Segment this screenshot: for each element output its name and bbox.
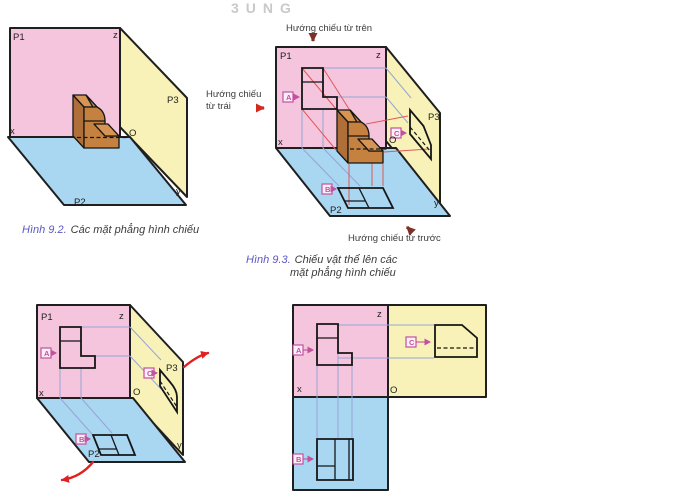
p3-plane-unfolded [388, 305, 486, 397]
label-x: x [39, 388, 44, 399]
label-y: y [177, 440, 182, 451]
left-direction-label-line1: Hướng chiếu [206, 89, 261, 100]
fig92-caption-number: Hình 9.2. [22, 224, 67, 236]
label-y: y [176, 186, 181, 197]
p2-plane-unfolded [293, 397, 388, 490]
fig93-caption-text1: Chiếu vật thể lên các [295, 254, 398, 266]
label-o: O [390, 385, 397, 396]
label-p1: P1 [280, 51, 292, 62]
label-y: y [434, 198, 439, 209]
label-p3: P3 [428, 112, 440, 123]
label-z: z [119, 311, 124, 322]
label-b: B [325, 185, 331, 194]
fig-9-2: P1 z P3 x O y P2 Hình 9.2.Các mặt phẳng … [8, 28, 199, 236]
label-c: C [409, 338, 415, 347]
fig93-caption-line2: mặt phẳng hình chiếu [290, 266, 396, 279]
fig-9-3: A C B P1 z P3 x O y P2 Hướng chiếu từ tr… [206, 23, 450, 279]
label-o: O [129, 128, 136, 139]
textbook-figure-page: 3UNG P1 z P3 x O y P2 Hình 9.2.Các mặt p… [0, 0, 675, 499]
fig92-caption-text: Các mặt phẳng hình chiếu [71, 223, 199, 236]
label-o: O [389, 135, 396, 146]
label-b: B [296, 455, 302, 464]
label-p2: P2 [88, 449, 100, 460]
label-p1: P1 [13, 32, 25, 43]
label-p2: P2 [74, 197, 86, 208]
label-z: z [113, 30, 118, 41]
label-p1: P1 [41, 312, 53, 323]
figure-canvas: 3UNG P1 z P3 x O y P2 Hình 9.2.Các mặt p… [0, 0, 675, 499]
label-z: z [376, 50, 381, 61]
p1-plane-unfolded [293, 305, 388, 397]
fig-unfolded-views: A C B z x O [293, 305, 486, 490]
label-x: x [278, 137, 283, 148]
label-a: A [44, 349, 50, 358]
rotation-arrow-p3 [184, 353, 208, 367]
fig92-caption: Hình 9.2.Các mặt phẳng hình chiếu [22, 223, 199, 236]
left-direction-label-line2: từ trái [206, 101, 231, 112]
label-c: C [147, 369, 153, 378]
label-o: O [133, 387, 140, 398]
label-x: x [297, 384, 302, 395]
front-direction-arrow-icon [407, 227, 412, 232]
label-z: z [377, 309, 382, 320]
watermark-text: 3UNG [231, 0, 298, 16]
fig93-caption-line1: Hình 9.3.Chiếu vật thể lên các [246, 254, 398, 266]
rotation-arrow-p2 [62, 462, 93, 480]
label-a: A [286, 93, 292, 102]
front-direction-label: Hướng chiếu từ trước [348, 233, 441, 244]
label-a: A [296, 346, 302, 355]
label-p2: P2 [330, 205, 342, 216]
label-x: x [10, 126, 15, 137]
fig-unfolding-3d: A C B P1 z x O P3 y P2 [37, 305, 208, 480]
fig93-caption-number: Hình 9.3. [246, 254, 291, 266]
label-p3: P3 [166, 363, 178, 374]
label-b: B [79, 435, 85, 444]
top-direction-label: Hướng chiếu từ trên [286, 23, 372, 34]
label-p3: P3 [167, 95, 179, 106]
